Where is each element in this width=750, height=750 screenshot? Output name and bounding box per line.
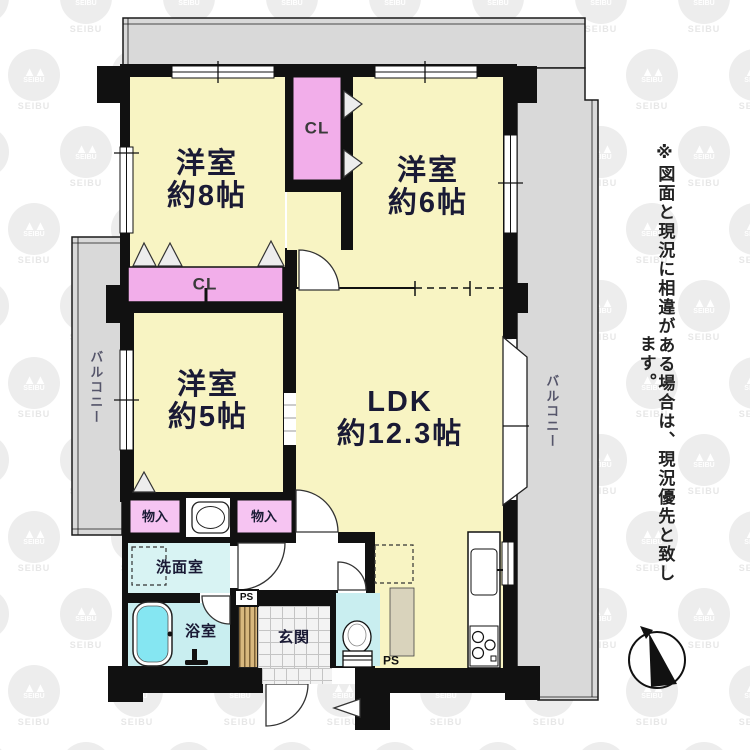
- washroom-door-opening: [230, 546, 238, 588]
- kitchen-counter: [468, 532, 503, 668]
- stove-icon: [470, 626, 498, 666]
- toilet-icon: [343, 621, 372, 667]
- balcony-right-label: バルコニー: [544, 374, 558, 449]
- door-arc-front-door: [266, 684, 308, 726]
- window-right-kitchen: [502, 542, 514, 585]
- room-bed5-name: 洋室: [168, 370, 248, 402]
- room-label-bed5: 洋室 約5帖: [168, 370, 248, 434]
- kitchen-sink-icon: [471, 549, 497, 595]
- front-door-leaf-icon: [334, 699, 360, 717]
- balcony-top: [123, 18, 585, 68]
- room-label-ldk: LDK 約12.3帖: [337, 387, 463, 451]
- entrance-label: 玄関: [278, 630, 310, 647]
- room-bed5-size: 約5帖: [168, 402, 248, 434]
- room-bed8-size: 約8帖: [167, 181, 247, 213]
- storage1-label: 物入: [142, 510, 168, 524]
- bay-window: [503, 337, 527, 505]
- washroom-label: 洗面室: [156, 560, 204, 577]
- room-ldk-size: 約12.3帖: [337, 419, 463, 451]
- shoe-cabinet: [390, 588, 414, 656]
- bath-label: 浴室: [185, 624, 217, 641]
- compass-north-icon: [629, 626, 685, 688]
- balcony-left-label: バルコニー: [88, 350, 102, 425]
- bathtub-icon: [133, 602, 173, 666]
- room-bed6-size: 約6帖: [388, 188, 468, 220]
- storage2-label: 物入: [251, 510, 277, 524]
- room-ldk-name: LDK: [337, 387, 463, 419]
- closet-top-label: CL: [305, 120, 330, 139]
- room-label-bed8: 洋室 約8帖: [167, 149, 247, 213]
- ps1-label: PS: [234, 589, 259, 607]
- entrance-tiles-door: [262, 668, 332, 684]
- closet-mid-label: CL: [193, 276, 218, 295]
- room-label-bed6: 洋室 約6帖: [388, 156, 468, 220]
- vanity-sink-icon: [192, 502, 229, 533]
- disclaimer-text: ※図面と現況に相違がある場合は、現況優先と致します。: [636, 138, 673, 588]
- room-bed8-ext-floor: [287, 192, 341, 250]
- floorplan-page: ▲▲SEIBUSEIBU▲▲SEIBUSEIBU▲▲SEIBUSEIBU▲▲SE…: [0, 0, 750, 750]
- pipe-space-louver: [238, 606, 258, 668]
- ps2-label: PS: [383, 654, 399, 667]
- bed5-door-opening: [284, 393, 296, 445]
- room-bed8-name: 洋室: [167, 149, 247, 181]
- room-bed6-name: 洋室: [388, 156, 468, 188]
